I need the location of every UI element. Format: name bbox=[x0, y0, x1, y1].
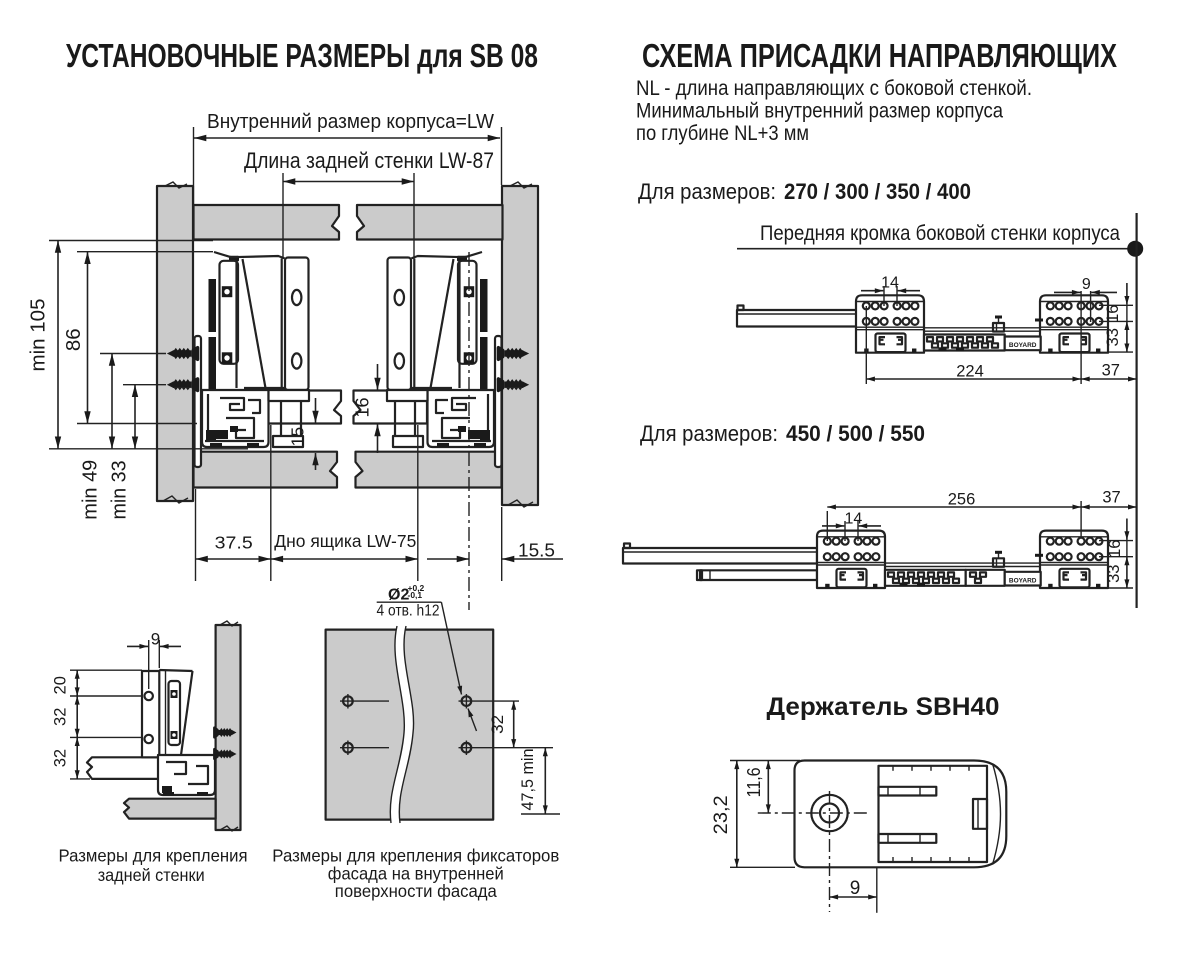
svg-text:14: 14 bbox=[845, 511, 863, 528]
svg-text:37: 37 bbox=[1102, 361, 1120, 379]
svg-text:9: 9 bbox=[850, 878, 861, 899]
svg-text:Для размеров:: Для размеров: bbox=[640, 421, 778, 446]
svg-text:16: 16 bbox=[353, 397, 373, 417]
svg-text:32: 32 bbox=[488, 715, 507, 734]
svg-text:УСТАНОВОЧНЫЕ РАЗМЕРЫ для SB 08: УСТАНОВОЧНЫЕ РАЗМЕРЫ для SB 08 bbox=[66, 37, 538, 74]
svg-text:33: 33 bbox=[1105, 565, 1123, 583]
svg-text:450 / 500 / 550: 450 / 500 / 550 bbox=[786, 421, 925, 446]
svg-text:20: 20 bbox=[52, 676, 70, 694]
svg-text:min 105: min 105 bbox=[27, 299, 50, 372]
svg-text:Дно ящика LW-75: Дно ящика LW-75 bbox=[274, 531, 416, 551]
svg-text:задней стенки: задней стенки bbox=[98, 865, 205, 885]
svg-text:11,6: 11,6 bbox=[744, 767, 764, 797]
svg-text:15.5: 15.5 bbox=[518, 541, 555, 561]
svg-text:по глубине NL+3 мм: по глубине NL+3 мм bbox=[636, 122, 809, 145]
svg-text:224: 224 bbox=[956, 362, 984, 380]
svg-text:СХЕМА ПРИСАДКИ НАПРАВЛЯЮЩИХ: СХЕМА ПРИСАДКИ НАПРАВЛЯЮЩИХ bbox=[642, 37, 1117, 74]
svg-text:NL - длина направляющих с боко: NL - длина направляющих с боковой стенко… bbox=[636, 77, 1032, 100]
svg-text:86: 86 bbox=[62, 328, 85, 351]
svg-text:37: 37 bbox=[1102, 488, 1120, 506]
svg-text:32: 32 bbox=[52, 749, 70, 767]
svg-text:256: 256 bbox=[948, 491, 976, 509]
svg-text:Внутренний размер корпуса=LW: Внутренний размер корпуса=LW bbox=[207, 110, 495, 133]
svg-text:Ø2: Ø2 bbox=[388, 587, 409, 604]
svg-text:Размеры для крепления: Размеры для крепления bbox=[59, 846, 248, 866]
svg-text:23,2: 23,2 bbox=[711, 795, 732, 834]
svg-text:Размеры для крепления фиксатор: Размеры для крепления фиксаторов bbox=[272, 846, 559, 866]
svg-text:32: 32 bbox=[52, 708, 70, 726]
svg-text:270 / 300 / 350 / 400: 270 / 300 / 350 / 400 bbox=[784, 179, 971, 204]
svg-text:4 отв. h12: 4 отв. h12 bbox=[377, 603, 440, 620]
svg-text:33: 33 bbox=[1104, 328, 1122, 346]
svg-text:9: 9 bbox=[1082, 276, 1091, 293]
svg-text:поверхности фасада: поверхности фасада bbox=[335, 881, 497, 901]
svg-text:BOYARD: BOYARD bbox=[1009, 342, 1037, 349]
svg-text:47,5 min: 47,5 min bbox=[518, 749, 537, 811]
svg-text:Минимальный внутренний размер: Минимальный внутренний размер корпуса bbox=[636, 100, 1003, 123]
svg-text:15: 15 bbox=[287, 427, 307, 446]
svg-text:Длина задней стенки LW-87: Длина задней стенки LW-87 bbox=[244, 148, 494, 173]
svg-text:37.5: 37.5 bbox=[215, 533, 253, 553]
svg-text:-0,1: -0,1 bbox=[408, 590, 423, 600]
svg-text:BOYARD: BOYARD bbox=[1009, 577, 1037, 584]
svg-text:min 33: min 33 bbox=[108, 461, 131, 520]
svg-text:Передняя кромка боковой стенки: Передняя кромка боковой стенки корпуса bbox=[760, 221, 1120, 245]
svg-text:16: 16 bbox=[1104, 305, 1122, 323]
svg-text:Держатель SBH40: Держатель SBH40 bbox=[767, 693, 1000, 721]
svg-text:Для размеров:: Для размеров: bbox=[638, 179, 776, 204]
svg-text:16: 16 bbox=[1106, 540, 1124, 558]
svg-text:min 49: min 49 bbox=[79, 460, 102, 520]
